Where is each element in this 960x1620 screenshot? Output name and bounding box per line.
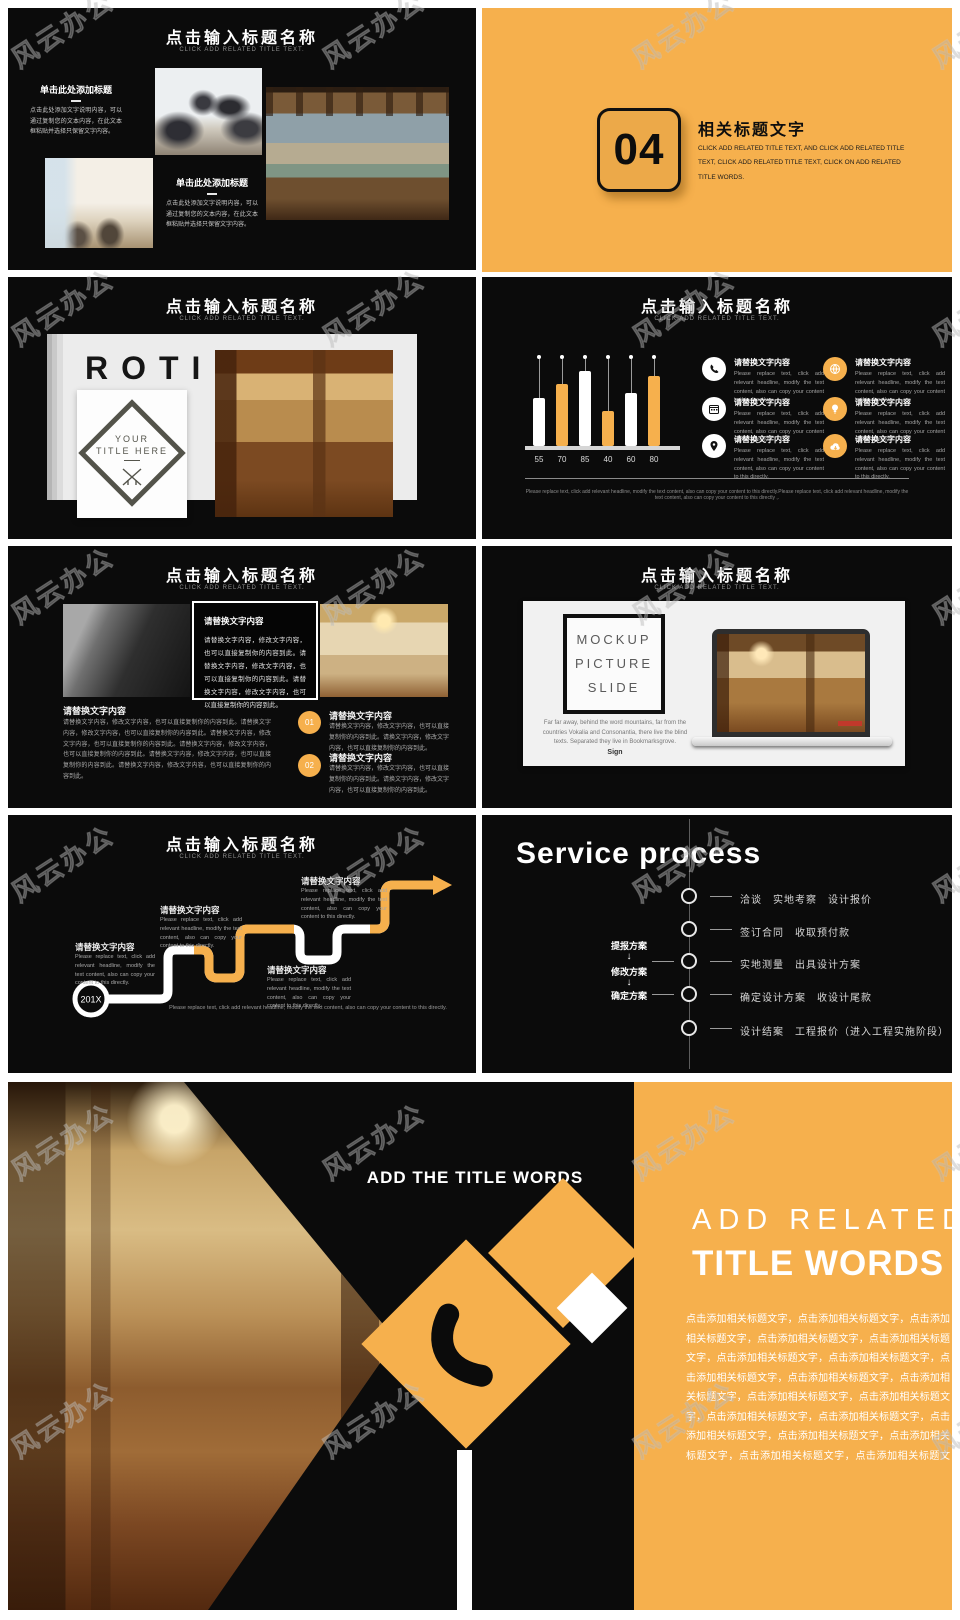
slide-title: 点击输入标题名称 bbox=[8, 562, 476, 586]
photo-watermark-tag bbox=[838, 721, 862, 726]
item-heading: 请替换文字内容 bbox=[329, 709, 392, 722]
down-arrow-icon: ↓ bbox=[594, 952, 664, 962]
slide-9-hero[interactable]: ADD RELATED TITLE WORDS 点击添加相关标题文字，点击添加相… bbox=[8, 1082, 952, 1610]
arrow-head-icon bbox=[433, 875, 452, 895]
cloud-icon bbox=[823, 434, 847, 458]
item-body: 请替换文字内容，修改文字内容，也可以直接复制你的内容到此。请换文字内容，修改文字… bbox=[329, 764, 449, 796]
connector bbox=[710, 994, 732, 995]
connector bbox=[710, 961, 732, 962]
timeline-body: Please replace text, click add relevant … bbox=[75, 953, 155, 988]
pin-icon bbox=[702, 434, 726, 458]
phone-icon bbox=[702, 357, 726, 381]
step-label: 洽谈 实地考察 设计报价 bbox=[740, 891, 872, 906]
step-label: 设计结案 工程报价（进入工程实施阶段） bbox=[740, 1023, 949, 1038]
down-arrow-icon: ↓ bbox=[594, 978, 664, 988]
slide-subtitle: CLICK ADD RELATED TITLE TEXT. bbox=[8, 585, 476, 591]
hero-title-line1: ADD RELATED bbox=[692, 1204, 952, 1237]
diamond-card: YOUR TITLE HERE bbox=[77, 390, 187, 518]
timeline-heading: 请替换文字内容 bbox=[301, 875, 361, 887]
mockup-line1: MOCKUP bbox=[575, 628, 653, 652]
bar-chart: 557085406080 bbox=[525, 349, 680, 464]
photo-overlay-title: ADD THE TITLE WORDS bbox=[275, 1168, 675, 1188]
orange-panel: ADD RELATED TITLE WORDS 点击添加相关标题文字，点击添加相… bbox=[634, 1082, 952, 1610]
bar-label: 40 bbox=[602, 455, 614, 464]
white-vertical-bar bbox=[457, 1450, 472, 1610]
chapter-heading: 相关标题文字 bbox=[698, 116, 806, 140]
classroom-photo bbox=[45, 158, 153, 248]
phone-icon bbox=[361, 1239, 571, 1449]
slide-subtitle: CLICK ADD RELATED TITLE TEXT. bbox=[8, 47, 476, 53]
step-label: 确定设计方案 收设计尾款 bbox=[740, 989, 872, 1004]
step-node bbox=[681, 888, 697, 904]
bar-label: 60 bbox=[625, 455, 637, 464]
item-title: 请替换文字内容 bbox=[734, 434, 824, 445]
globe-icon bbox=[823, 357, 847, 381]
bulb-icon bbox=[823, 397, 847, 421]
mockup-line2: PICTURE bbox=[575, 652, 653, 676]
mockup-card: MOCKUP PICTURE SLIDE Far far away, behin… bbox=[523, 601, 905, 766]
item-title: 请替换文字内容 bbox=[855, 357, 945, 368]
divider bbox=[71, 100, 81, 102]
chapter-number-box: 04 bbox=[597, 108, 681, 192]
slide-3-roti[interactable]: 点击输入标题名称 CLICK ADD RELATED TITLE TEXT. R… bbox=[8, 277, 476, 539]
bar-col: 60 bbox=[625, 349, 637, 464]
businessman-photo bbox=[63, 604, 190, 697]
item-body: Please replace text, click add relevant … bbox=[855, 447, 945, 482]
mockup-title-box: MOCKUP PICTURE SLIDE bbox=[563, 614, 665, 714]
bedroom-photo bbox=[320, 604, 448, 697]
connector bbox=[710, 1028, 732, 1029]
center-text-box: 请替换文字内容 请替换文字内容，修改文字内容，也可以直接复制你的内容到此。请替换… bbox=[192, 601, 318, 700]
slide-1-content-images[interactable]: 点击输入标题名称 CLICK ADD RELATED TITLE TEXT. 单… bbox=[8, 8, 476, 270]
start-year: 201X bbox=[80, 995, 101, 1005]
step-label: 签订合同 收取预付款 bbox=[740, 924, 850, 939]
connector bbox=[710, 929, 732, 930]
slide-title: 点击输入标题名称 bbox=[8, 24, 476, 48]
box-heading: 请替换文字内容 bbox=[204, 615, 306, 627]
step-node bbox=[681, 921, 697, 937]
block-heading: 单击此处添加标题 bbox=[30, 83, 122, 96]
chapter-body: CLICK ADD RELATED TITLE TEXT, AND CLICK … bbox=[698, 142, 906, 185]
timeline-caption: Please replace text, click add relevant … bbox=[168, 1005, 448, 1011]
slide-7-timeline[interactable]: 点击输入标题名称 CLICK ADD RELATED TITLE TEXT. 2… bbox=[8, 815, 476, 1073]
text-block-1: 单击此处添加标题 点击此处添加文字说明内容，可以通过复制您的文本内容，在此文本框… bbox=[30, 83, 122, 138]
step-label: 实地测量 出具设计方案 bbox=[740, 956, 861, 971]
hero-title-line2: TITLE WORDS bbox=[692, 1244, 944, 1284]
item-title: 请替换文字内容 bbox=[855, 434, 945, 445]
item-title: 请替换文字内容 bbox=[734, 357, 824, 368]
list-item: 请替换文字内容 Please replace text, click add r… bbox=[823, 434, 945, 482]
item-body: 请替换文字内容，修改文字内容，也可以直接复制你的内容到此。请换文字内容，修改文字… bbox=[329, 722, 449, 754]
timeline-heading: 请替换文字内容 bbox=[267, 964, 327, 976]
slide-subtitle: CLICK ADD RELATED TITLE TEXT. bbox=[8, 316, 476, 322]
divider bbox=[124, 460, 140, 461]
crossed-lines-icon bbox=[119, 467, 145, 487]
template-preview-page: 点击输入标题名称 CLICK ADD RELATED TITLE TEXT. 单… bbox=[0, 0, 960, 1620]
bar-label: 70 bbox=[556, 455, 568, 464]
kitchen-photo bbox=[215, 350, 393, 517]
sign-label: Sign bbox=[541, 749, 689, 756]
laptop-base bbox=[692, 737, 892, 746]
step-node bbox=[681, 953, 697, 969]
slide-6-mockup[interactable]: 点击输入标题名称 CLICK ADD RELATED TITLE TEXT. M… bbox=[482, 546, 952, 808]
slide-8-service-process[interactable]: Service process 洽谈 实地考察 设计报价 签订合同 收取预付款 … bbox=[482, 815, 952, 1073]
slide-title: 点击输入标题名称 bbox=[8, 293, 476, 317]
bar-col: 55 bbox=[533, 349, 545, 464]
slide-2-chapter[interactable]: 04 相关标题文字 CLICK ADD RELATED TITLE TEXT, … bbox=[482, 8, 952, 272]
mockup-paragraph: Far far away, behind the word mountains,… bbox=[541, 719, 689, 748]
diamond-line1: YOUR bbox=[77, 434, 187, 444]
hero-body: 点击添加相关标题文字，点击添加相关标题文字，点击添加相关标题文字，点击添加相关标… bbox=[686, 1310, 950, 1468]
text-block-2: 单击此处添加标题 点击此处添加文字说明内容，可以通过复制您的文本内容，在此文本框… bbox=[166, 176, 258, 231]
laptop-screen bbox=[712, 629, 870, 737]
slide-subtitle: CLICK ADD RELATED TITLE TEXT. bbox=[482, 316, 952, 322]
bar-label: 85 bbox=[579, 455, 591, 464]
box-body: 请替换文字内容，修改文字内容，也可以直接复制你的内容到此。请替换文字内容，修改文… bbox=[204, 634, 306, 712]
bar-col: 40 bbox=[602, 349, 614, 464]
timeline-body: Please replace text, click add relevant … bbox=[160, 916, 242, 951]
bar-label: 55 bbox=[533, 455, 545, 464]
block-body: 点击此处添加文字说明内容，可以通过复制您的文本内容，在此文本框粘贴并选择只保留文… bbox=[166, 199, 258, 231]
calendar-icon bbox=[702, 397, 726, 421]
bar-col: 85 bbox=[579, 349, 591, 464]
timeline-heading: 请替换文字内容 bbox=[160, 904, 220, 916]
step-node bbox=[681, 986, 697, 1002]
roti-logo-text: ROTI bbox=[85, 350, 213, 387]
item-heading: 请替换文字内容 bbox=[329, 751, 392, 764]
connector bbox=[710, 896, 732, 897]
side-label: 确定方案 bbox=[594, 989, 664, 1002]
diamond-line2: TITLE HERE bbox=[77, 446, 187, 456]
page-title: Service process bbox=[516, 837, 761, 871]
divider bbox=[207, 193, 217, 195]
timeline-heading: 请替换文字内容 bbox=[75, 941, 135, 953]
block-body: 点击此处添加文字说明内容，可以通过复制您的文本内容，在此文本框粘贴并选择只保留文… bbox=[30, 106, 122, 138]
item-title: 请替换文字内容 bbox=[734, 397, 824, 408]
slide-title: 点击输入标题名称 bbox=[482, 293, 952, 317]
meeting-photo bbox=[155, 68, 262, 155]
bar-col: 80 bbox=[648, 349, 660, 464]
timeline-body: Please replace text, click add relevant … bbox=[301, 887, 387, 922]
number-badge: 01 bbox=[298, 711, 321, 734]
diamond-caption: YOUR TITLE HERE bbox=[77, 434, 187, 492]
divider bbox=[525, 478, 909, 479]
item-body: Please replace text, click add relevant … bbox=[734, 447, 824, 482]
footer-note: Please replace text, click add relevant … bbox=[525, 489, 909, 501]
living-room-photo bbox=[266, 87, 449, 220]
section-heading: 请替换文字内容 bbox=[63, 704, 126, 717]
slide-5-three-panels[interactable]: 点击输入标题名称 CLICK ADD RELATED TITLE TEXT. 请… bbox=[8, 546, 476, 808]
item-title: 请替换文字内容 bbox=[855, 397, 945, 408]
list-item: 请替换文字内容 Please replace text, click add r… bbox=[702, 434, 824, 482]
laptop-screen-photo bbox=[717, 634, 865, 732]
number-badge: 02 bbox=[298, 754, 321, 777]
slide-title: 点击输入标题名称 bbox=[482, 562, 952, 586]
mockup-line3: SLIDE bbox=[575, 676, 653, 700]
step-node bbox=[681, 1020, 697, 1036]
chapter-number: 04 bbox=[614, 125, 665, 175]
section-body: 请替换文字内容，修改文字内容，也可以直接复制你的内容到此。请替换文字内容，修改文… bbox=[63, 718, 271, 780]
slide-subtitle: CLICK ADD RELATED TITLE TEXT. bbox=[482, 585, 952, 591]
bar-label: 80 bbox=[648, 455, 660, 464]
mockup-title: MOCKUP PICTURE SLIDE bbox=[575, 628, 653, 700]
block-heading: 单击此处添加标题 bbox=[166, 176, 258, 189]
bar-col: 70 bbox=[556, 349, 568, 464]
slide-4-chart[interactable]: 点击输入标题名称 CLICK ADD RELATED TITLE TEXT. 5… bbox=[482, 277, 952, 539]
